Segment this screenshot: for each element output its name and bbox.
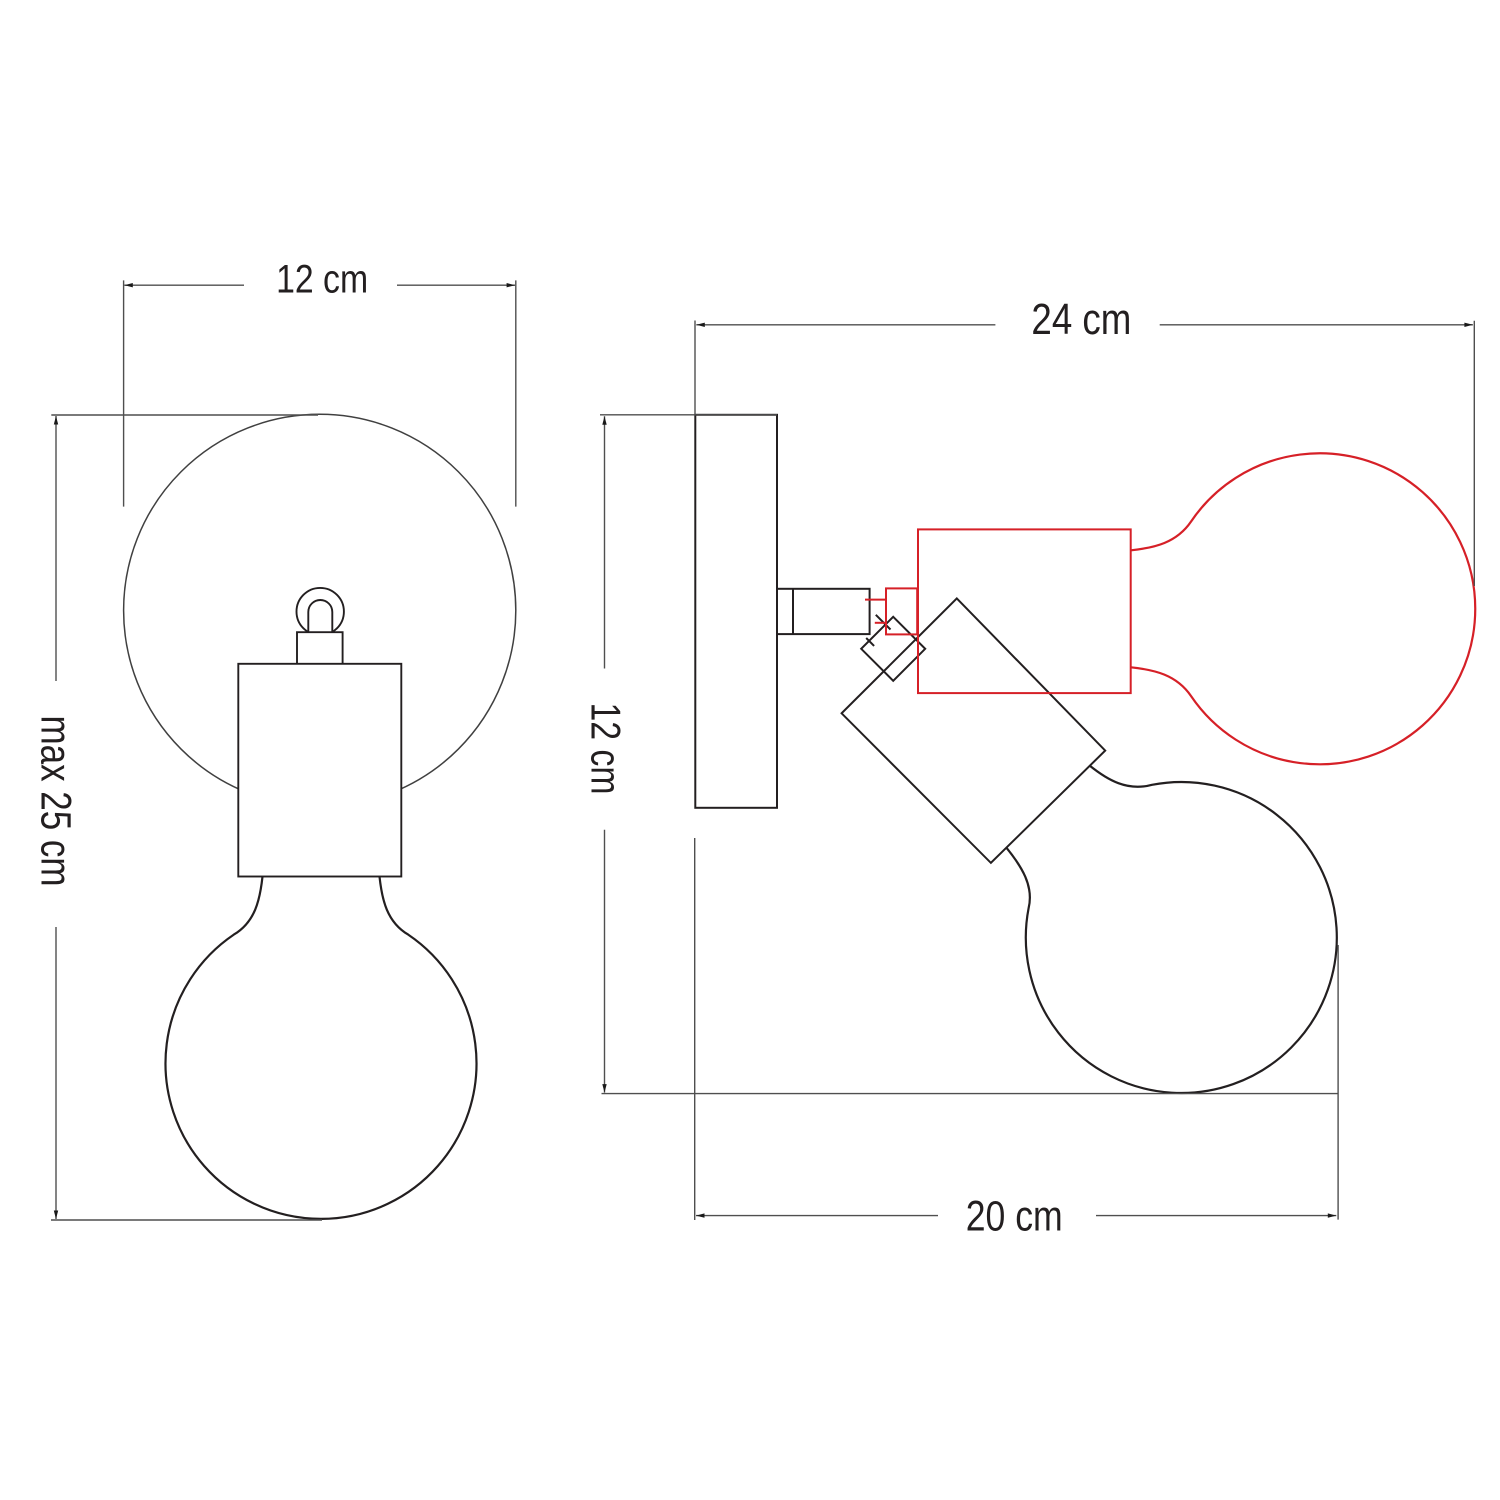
svg-text:max 25 cm: max 25 cm	[32, 716, 79, 887]
svg-text:12 cm: 12 cm	[276, 257, 368, 301]
svg-text:12 cm: 12 cm	[583, 703, 630, 795]
svg-text:20 cm: 20 cm	[966, 1193, 1063, 1241]
svg-text:24 cm: 24 cm	[1031, 295, 1131, 344]
